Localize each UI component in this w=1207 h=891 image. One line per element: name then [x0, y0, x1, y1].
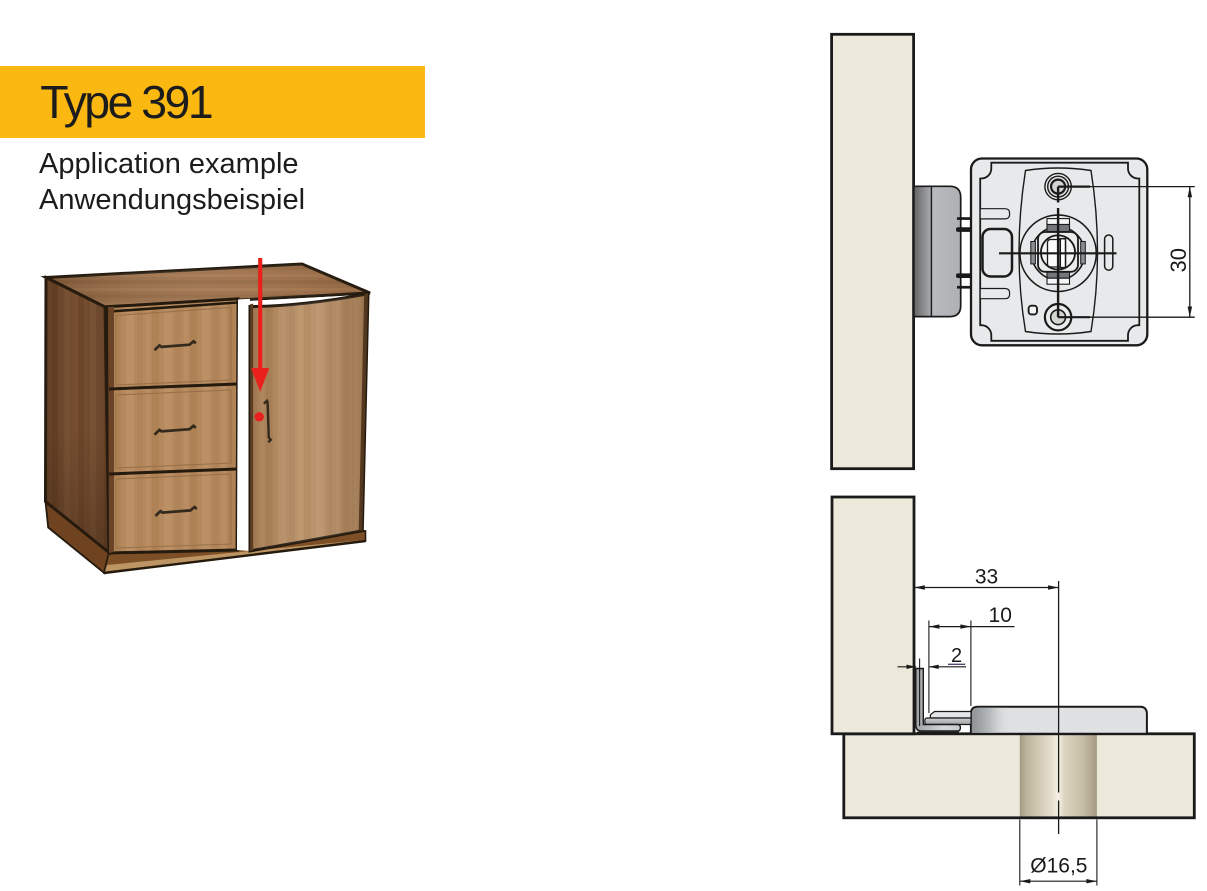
svg-text:30: 30 — [1166, 248, 1191, 272]
svg-text:Ø16,5: Ø16,5 — [1030, 855, 1087, 878]
svg-text:10: 10 — [989, 604, 1012, 627]
svg-text:33: 33 — [975, 566, 998, 589]
